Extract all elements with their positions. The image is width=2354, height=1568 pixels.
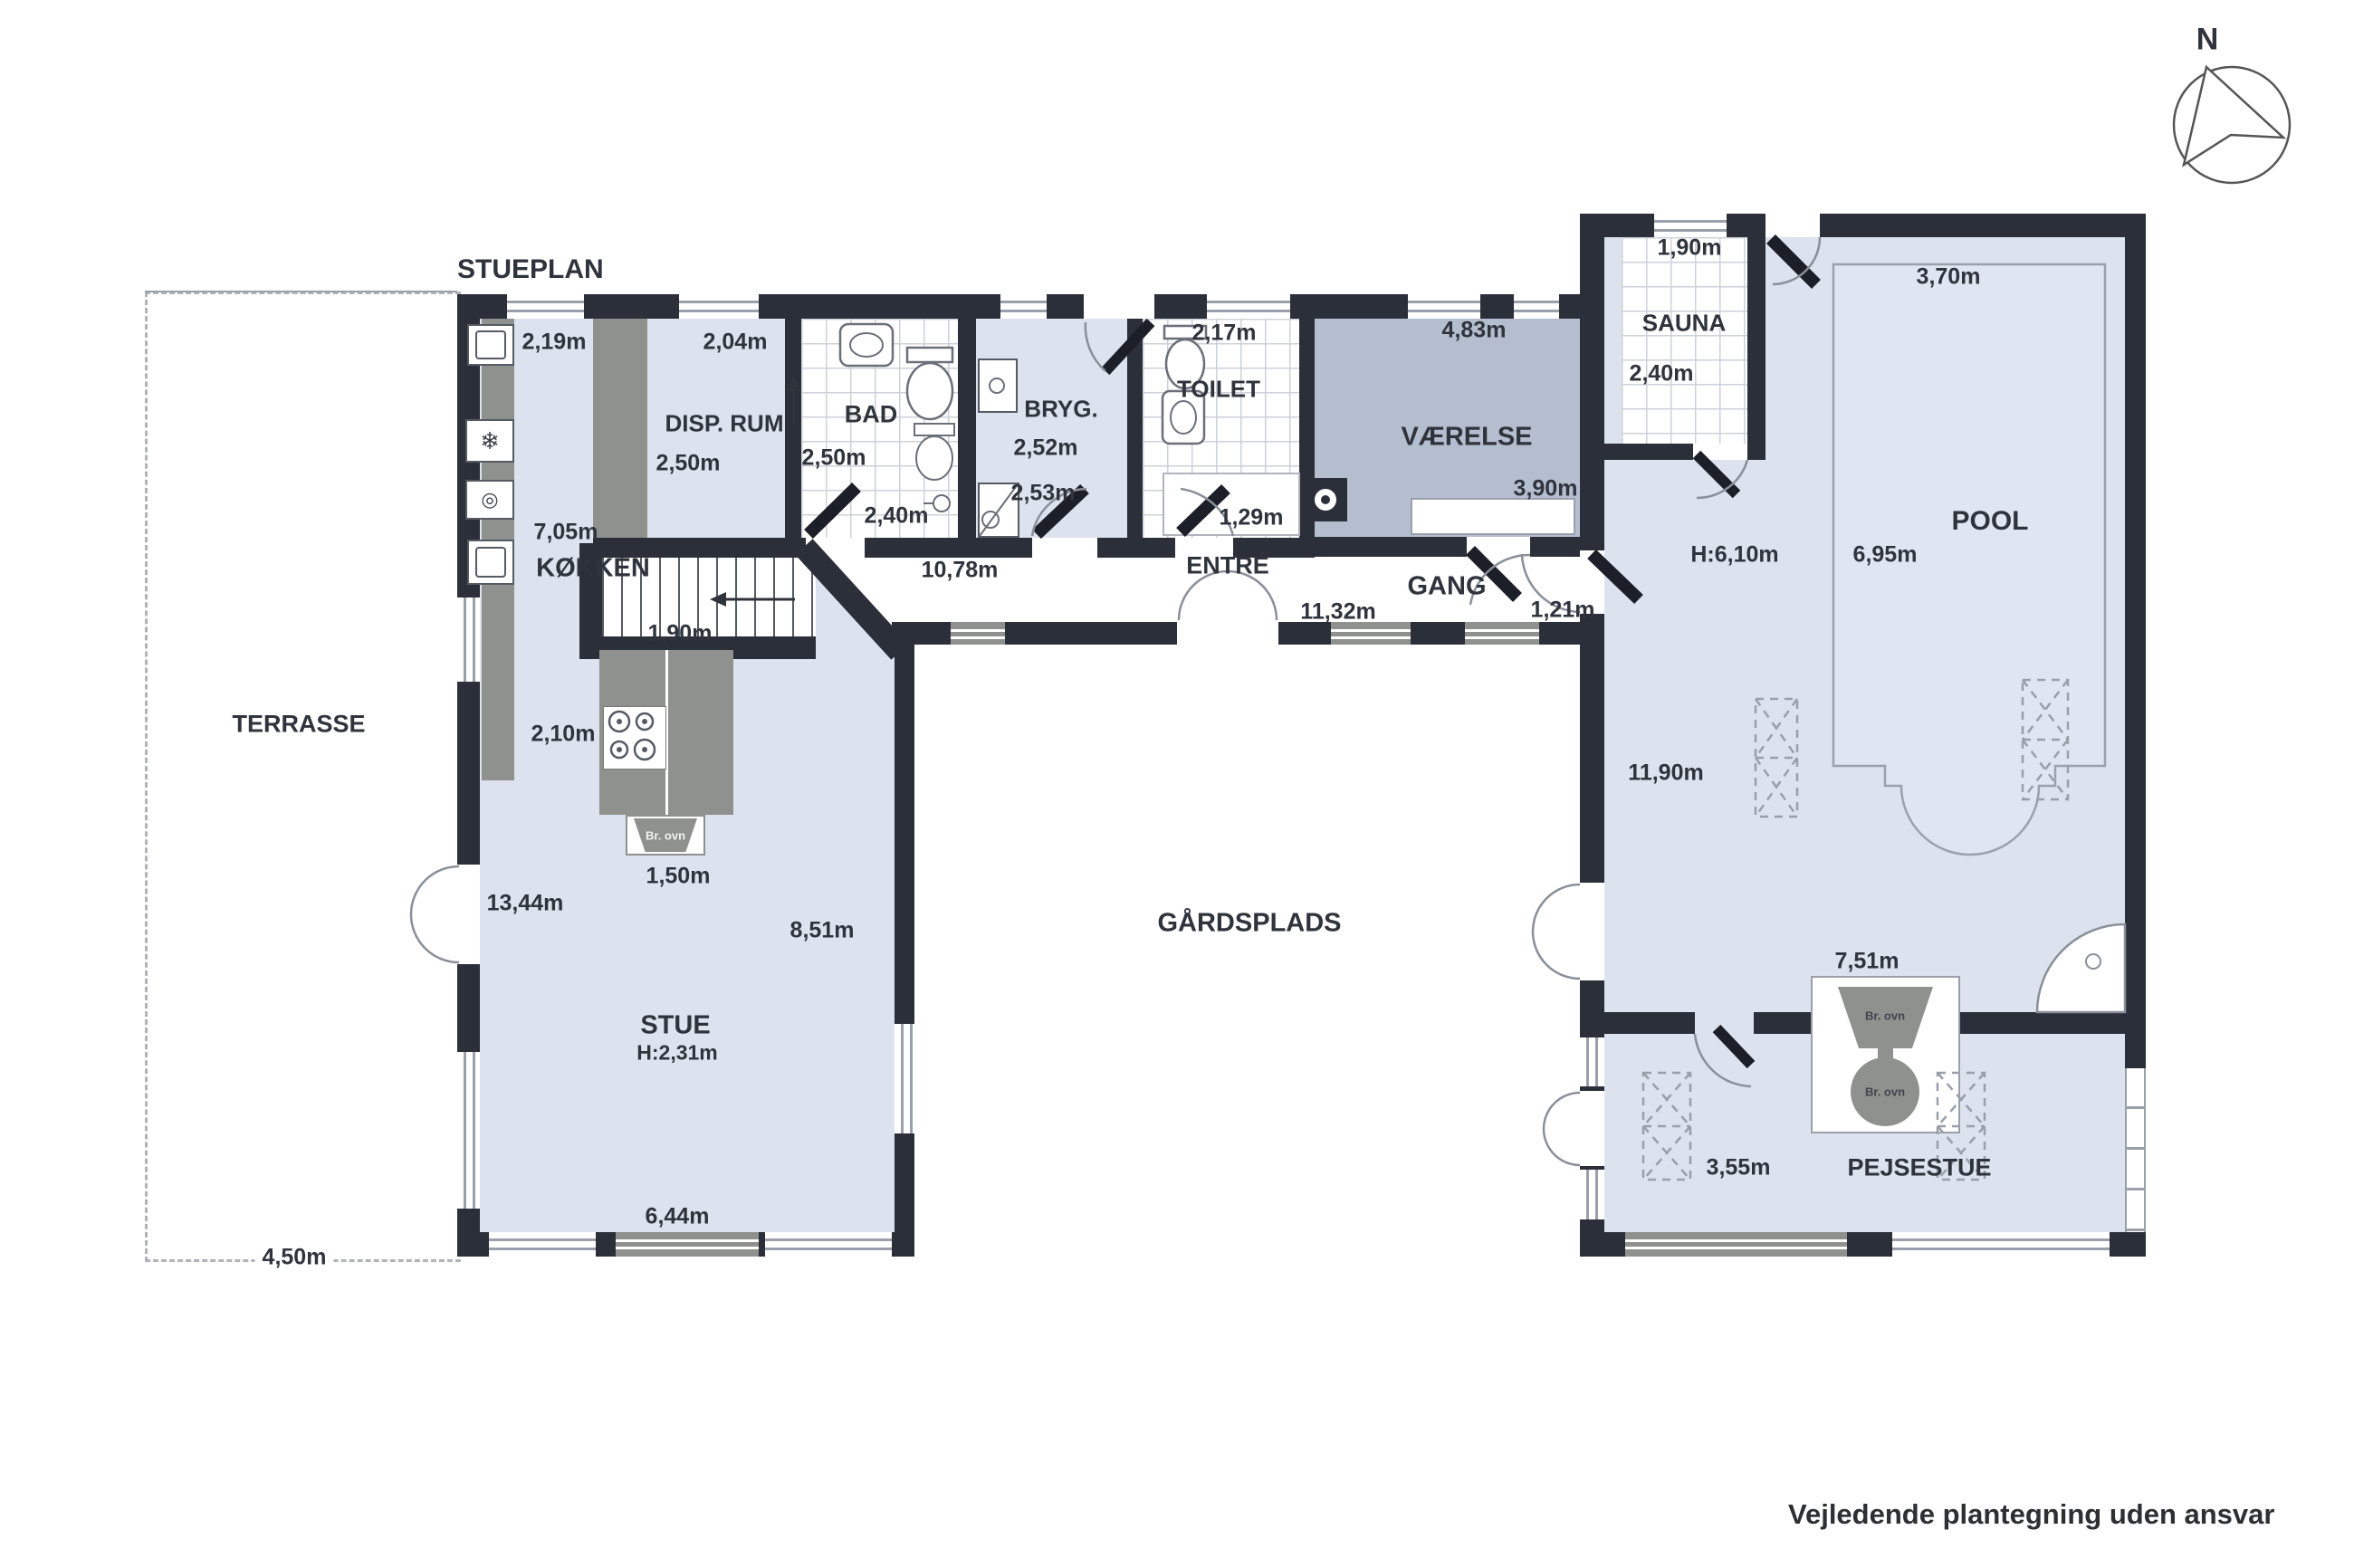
label-gaardsplads: GÅRDSPLADS (1157, 909, 1341, 939)
dim: 6,95m (1853, 542, 1918, 569)
dim-terrasse: 4,50m (255, 1245, 334, 1271)
dim: 1,21m (1531, 598, 1595, 624)
label-entre: ENTRÉ (1186, 552, 1269, 580)
dim: 7,51m (1835, 949, 1899, 975)
label-bryg: BRYG. (1024, 396, 1097, 424)
bathtub-icon (2037, 924, 2125, 1012)
dim: 1,50m (646, 864, 711, 890)
label-gang: GANG (1408, 572, 1487, 602)
dim: H:6,10m (1690, 542, 1778, 569)
dim: 10,78m (922, 558, 999, 584)
floor-plan: ❄ ◎ Br. ovn Br. ovn Br. ovn (0, 0, 2354, 1568)
dim: 3,70m (1917, 264, 1981, 291)
dim: H:2,31m (636, 1041, 717, 1066)
dim: 11,32m (1300, 599, 1375, 626)
label-kokken: KØKKEN (536, 554, 650, 584)
door-leaf (1592, 554, 1639, 599)
dim: 2,17m (1192, 320, 1257, 347)
compass-north-label: N (2196, 23, 2219, 58)
door-leaf (1105, 322, 1151, 371)
dim: 2,52m (1014, 435, 1078, 462)
label-sauna: SAUNA (1642, 310, 1726, 338)
dim: 2,50m (656, 451, 721, 477)
shower-icon (933, 495, 950, 512)
label-toilet: TOILET (1177, 376, 1260, 404)
door-leaf (809, 487, 856, 534)
vector-overlay (0, 0, 2354, 1568)
label-stue: STUE (640, 1011, 710, 1041)
dim: 1,90m (648, 621, 713, 647)
washbasin-icon (840, 324, 893, 366)
label-pejsestue: PEJSESTUE (1847, 1154, 1991, 1182)
label-pool: POOL (1951, 506, 2028, 537)
label-bad: BAD (845, 401, 898, 429)
door-leaf (1771, 239, 1816, 284)
dim: 3,55m (1707, 1155, 1771, 1181)
dim: 8,51m (790, 918, 855, 944)
dim: 3,90m (1514, 476, 1578, 502)
label-vaerelse: VÆRELSE (1401, 423, 1532, 453)
dim: 1,90m (1658, 235, 1722, 262)
compass-icon (2174, 67, 2290, 183)
label-terrasse: TERRASSE (232, 711, 365, 739)
dim: 2,10m (531, 722, 596, 748)
dim: 2,40m (1630, 361, 1694, 387)
dim: 2,19m (522, 330, 587, 356)
dim: 6,44m (646, 1204, 710, 1230)
dim: 2,40m (865, 503, 929, 530)
door-leaf (1697, 454, 1737, 494)
dim: 2,53m (1011, 481, 1076, 507)
page-title: STUEPLAN (457, 254, 604, 285)
dim: 13,44m (487, 891, 564, 917)
dim: 7,05m (534, 520, 598, 546)
dim: 1,29m (1220, 505, 1284, 531)
dim: 2,50m (802, 445, 866, 472)
dim: 4,83m (1442, 318, 1507, 344)
bidet-icon (914, 424, 954, 435)
toilet-icon (907, 348, 952, 362)
dim: 2,04m (703, 330, 768, 356)
dim: 11,90m (1628, 760, 1703, 787)
door-leaf (1717, 1028, 1751, 1065)
disclaimer: Vejledende plantegning uden ansvar (1788, 1498, 2274, 1531)
label-disp-rum: DISP. RUM (665, 410, 784, 438)
